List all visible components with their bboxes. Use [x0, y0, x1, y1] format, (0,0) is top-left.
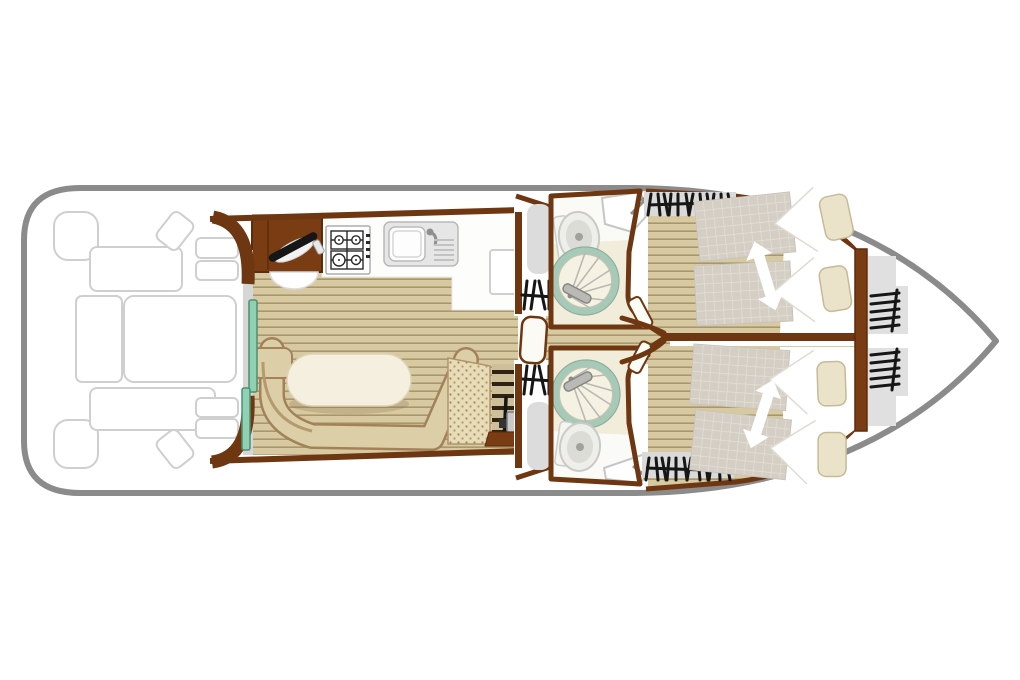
side-entry-bottom: [514, 360, 554, 478]
deck-table-left: [76, 296, 122, 382]
boarding-step: [196, 419, 238, 438]
entry-wall: [515, 212, 522, 314]
boarding-step: [196, 238, 238, 258]
under-counter-locker: [490, 250, 518, 294]
sliding-hatch-pad: [527, 204, 551, 274]
deck-table-right: [124, 296, 236, 382]
sliding-door-panel: [249, 300, 257, 392]
forward-bulkhead: [855, 249, 867, 431]
boarding-step: [196, 398, 238, 417]
galley-sink-icon: [384, 222, 458, 266]
boarding-step: [196, 261, 238, 280]
bench-corner-seat: [252, 348, 292, 378]
side-entry-top: [514, 196, 554, 316]
entry-wall: [515, 364, 522, 468]
shower-icon: [551, 247, 619, 315]
sliding-door-panel: [242, 388, 250, 450]
pillow-icon: [818, 432, 846, 476]
boat-floor-plan-canvas: [0, 0, 1020, 680]
textured-bench: [448, 358, 490, 444]
gas-hob-icon: [326, 226, 370, 274]
deck-bench: [90, 247, 182, 291]
shower-icon: [552, 360, 620, 428]
corridor-door-leaf: [519, 316, 547, 364]
sliding-hatch-pad: [527, 402, 551, 470]
pillow-icon: [817, 361, 847, 406]
deck-plan-svg: [0, 0, 1020, 680]
saloon-table: [287, 354, 411, 406]
partition-wall: [664, 333, 860, 341]
pillow-icon: [818, 265, 853, 313]
